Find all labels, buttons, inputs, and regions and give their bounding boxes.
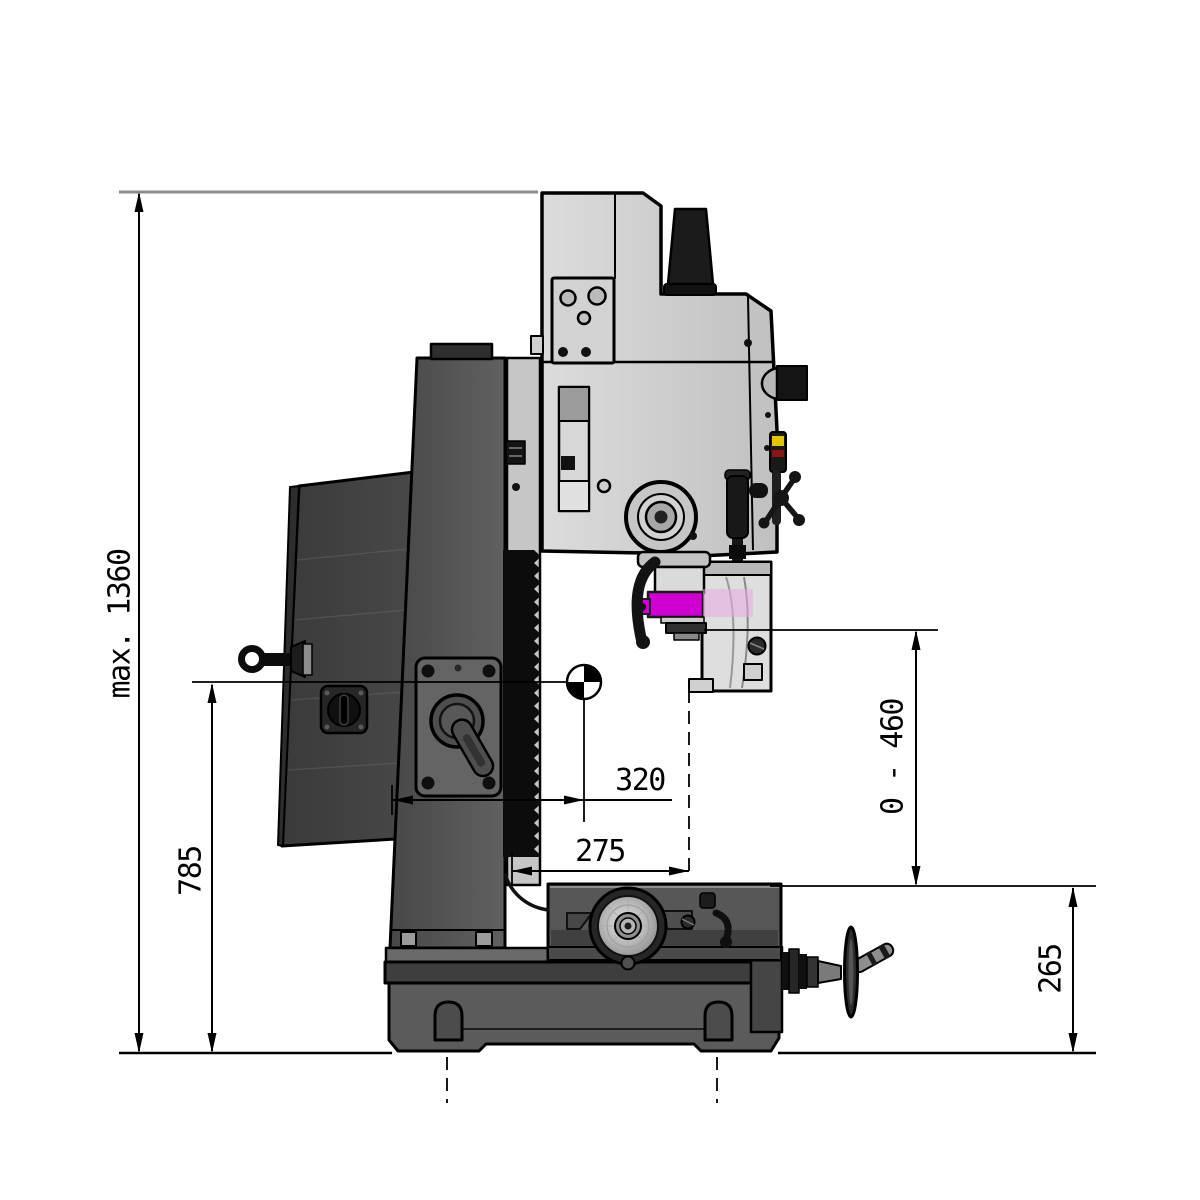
- column-base-plate: [386, 948, 552, 962]
- drawbar-handle: [770, 432, 786, 472]
- rotary-switch: [321, 686, 367, 733]
- mounting-slot-right: [705, 1002, 732, 1040]
- rear-switch-box: [777, 366, 807, 400]
- technical-drawing-page: max. 1360 785 320 275 0 - 46: [0, 0, 1200, 1200]
- dimension-label-785: 785: [174, 846, 209, 896]
- spindle-nose: [674, 633, 699, 640]
- clamp-shadow-pink: [703, 589, 753, 617]
- key-handle: [242, 641, 313, 677]
- dimension-label-overall-height: max. 1360: [103, 549, 138, 698]
- x-crank-handle: [782, 927, 896, 1017]
- dimension-table-height: 265: [1034, 887, 1078, 1053]
- head-side-panel: [559, 387, 589, 511]
- door-panel: [416, 658, 501, 796]
- machine-head: [531, 193, 807, 692]
- dimension-overall-height: max. 1360: [103, 192, 144, 1053]
- milling-machine-drawing: max. 1360 785 320 275 0 - 46: [0, 0, 1200, 1200]
- machine: [242, 193, 896, 1051]
- column-top-cap: [431, 344, 492, 359]
- machine-base: [385, 947, 783, 1051]
- mount-plate: [552, 278, 614, 363]
- dimension-label-275: 275: [575, 834, 625, 869]
- z-ways: [503, 358, 542, 885]
- cross-table: [548, 884, 781, 970]
- spindle-boss: [626, 482, 696, 552]
- dimension-datum-height: 785: [174, 683, 217, 1053]
- electrical-cover: [242, 472, 415, 846]
- datum-symbol: [567, 665, 601, 699]
- lock-knob: [749, 483, 768, 498]
- dimension-label-0-460: 0 - 460: [876, 699, 911, 815]
- dimension-label-320: 320: [615, 763, 665, 798]
- mounting-slot-left: [435, 1002, 462, 1040]
- z-bellows: [503, 550, 542, 857]
- dimension-label-265: 265: [1034, 944, 1069, 994]
- dimension-spindle-to-table: 0 - 460: [876, 630, 921, 886]
- quill-clamp-magenta: [648, 592, 703, 617]
- motor-cone: [664, 209, 716, 295]
